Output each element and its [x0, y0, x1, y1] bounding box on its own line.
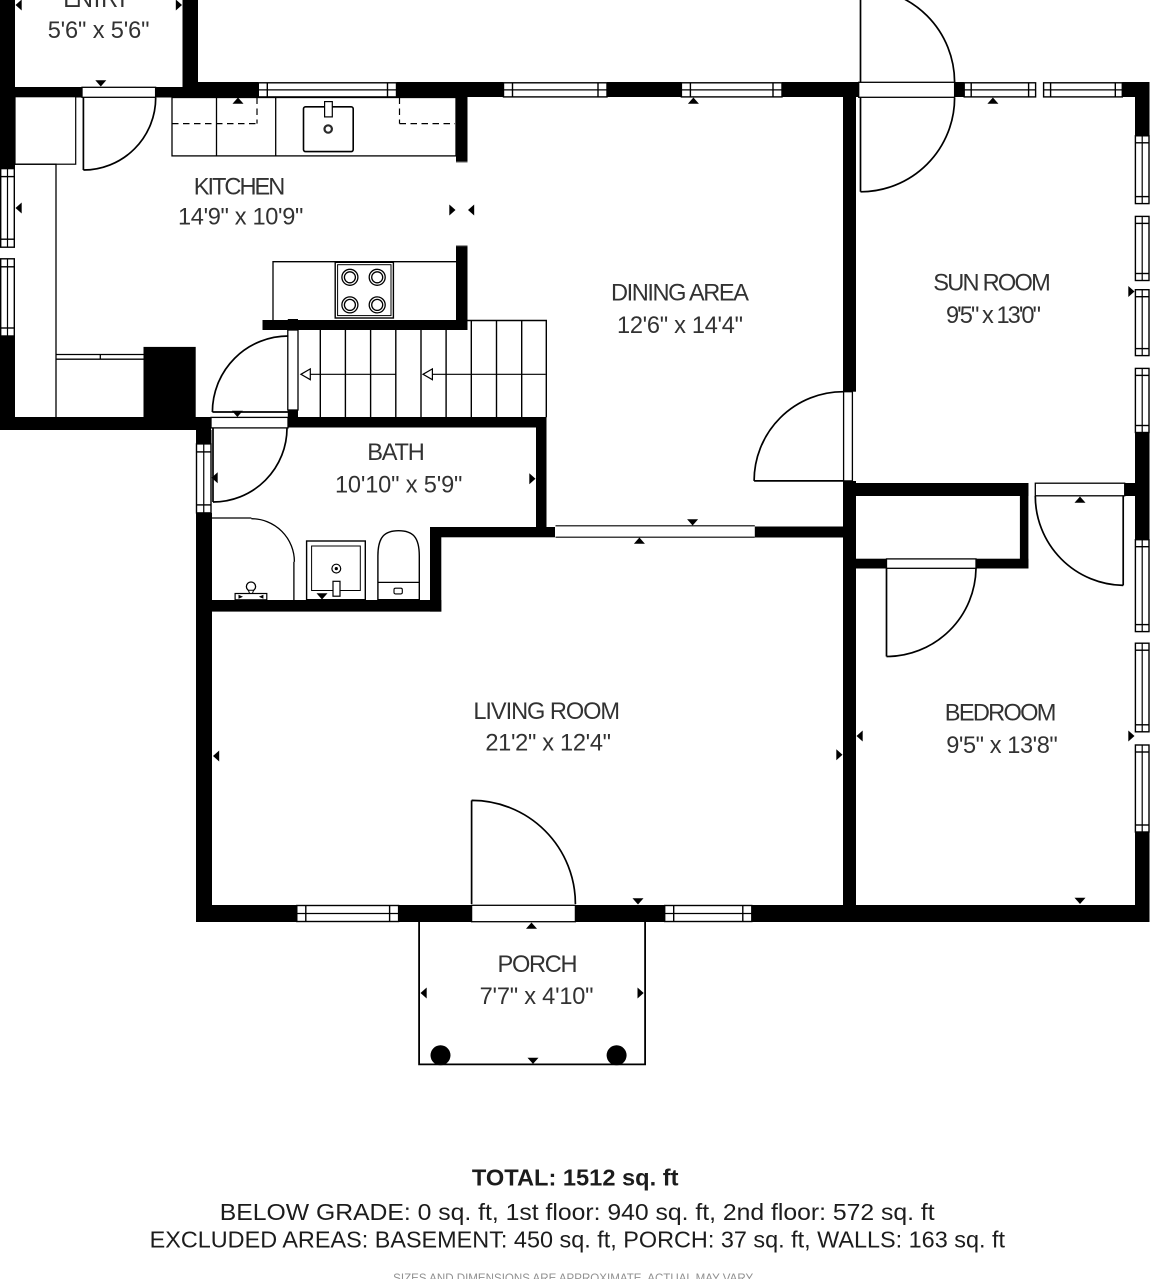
svg-text:BATH: BATH [367, 440, 425, 466]
svg-text:12'6" x 14'4": 12'6" x 14'4" [617, 313, 743, 339]
svg-text:10'10" x 5'9": 10'10" x 5'9" [335, 473, 463, 499]
svg-text:7'7" x 4'10": 7'7" x 4'10" [480, 984, 594, 1010]
svg-text:KITCHEN: KITCHEN [194, 175, 286, 201]
svg-text:EXCLUDED AREAS: BASEMENT: 450: EXCLUDED AREAS: BASEMENT: 450 sq. ft, PO… [150, 1226, 1006, 1252]
svg-text:14'9" x 10'9": 14'9" x 10'9" [178, 204, 303, 230]
svg-text:SUN ROOM: SUN ROOM [933, 271, 1051, 297]
svg-text:DINING AREA: DINING AREA [611, 281, 749, 307]
svg-text:PORCH: PORCH [498, 952, 578, 978]
svg-text:TOTAL: 1512 sq. ft: TOTAL: 1512 sq. ft [472, 1165, 679, 1191]
svg-text:9'5" x 13'8": 9'5" x 13'8" [946, 733, 1058, 759]
svg-text:BEDROOM: BEDROOM [945, 700, 1057, 726]
svg-text:LIVING ROOM: LIVING ROOM [473, 699, 620, 725]
svg-text:SIZES AND DIMENSIONS ARE APPRO: SIZES AND DIMENSIONS ARE APPROXIMATE, AC… [393, 1273, 753, 1279]
svg-text:BELOW GRADE: 0 sq. ft, 1st flo: BELOW GRADE: 0 sq. ft, 1st floor: 940 sq… [220, 1199, 936, 1225]
svg-text:5'6" x 5'6": 5'6" x 5'6" [48, 18, 150, 44]
svg-text:9'5" x 13'0": 9'5" x 13'0" [946, 303, 1041, 329]
svg-text:21'2" x 12'4": 21'2" x 12'4" [485, 731, 611, 757]
svg-text:ENTRY: ENTRY [63, 0, 130, 13]
